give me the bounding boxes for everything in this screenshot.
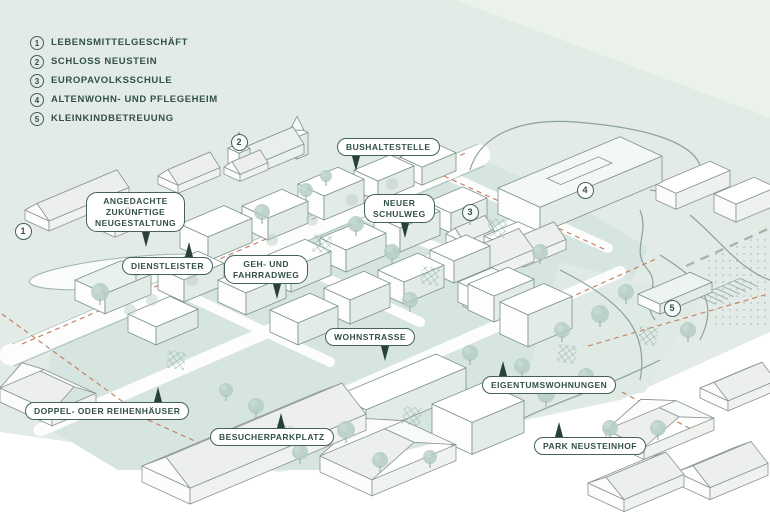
legend-item: 5KLEINKINDBETREUUNG bbox=[30, 111, 218, 126]
site-plan-illustration: 1LEBENSMITTELGESCHÄFT2SCHLOSS NEUSTEIN3E… bbox=[0, 0, 770, 515]
legend-number-badge: 4 bbox=[30, 93, 44, 107]
legend-item: 1LEBENSMITTELGESCHÄFT bbox=[30, 35, 218, 50]
legend-label: LEBENSMITTELGESCHÄFT bbox=[51, 37, 188, 48]
legend-number-badge: 2 bbox=[30, 55, 44, 69]
map-label-neuer-schulweg: NEUER SCHULWEG bbox=[364, 194, 435, 223]
map-label-eigentumswohnungen: EIGENTUMSWOHNUNGEN bbox=[482, 376, 616, 394]
label-pointer-icon bbox=[555, 422, 563, 437]
legend-number-badge: 5 bbox=[30, 112, 44, 126]
map-label-doppel-oder-reihenhaeuser: DOPPEL- ODER REIHENHÄUSER bbox=[25, 402, 189, 420]
legend-item: 3EUROPAVOLKSSCHULE bbox=[30, 73, 218, 88]
map-label-angedachte-neugestaltung: ANGEDACHTE ZUKÜNFTIGE NEUGESTALTUNG bbox=[86, 192, 185, 232]
map-marker-3: 3 bbox=[462, 204, 479, 221]
map-marker-5: 5 bbox=[664, 300, 681, 317]
label-pointer-icon bbox=[352, 156, 360, 171]
label-pointer-icon bbox=[154, 387, 162, 402]
map-label-dienstleister: DIENSTLEISTER bbox=[122, 257, 213, 275]
map-label-park-neusteinhof: PARK NEUSTEINHOF bbox=[534, 437, 646, 455]
map-label-geh-und-fahrradweg: GEH- UND FAHRRADWEG bbox=[224, 255, 308, 284]
legend: 1LEBENSMITTELGESCHÄFT2SCHLOSS NEUSTEIN3E… bbox=[30, 35, 218, 130]
legend-label: SCHLOSS NEUSTEIN bbox=[51, 56, 157, 67]
map-label-besucherparkplatz: BESUCHERPARKPLATZ bbox=[210, 428, 334, 446]
label-pointer-icon bbox=[273, 284, 281, 299]
legend-label: KLEINKINDBETREUUNG bbox=[51, 113, 174, 124]
map-marker-4: 4 bbox=[577, 182, 594, 199]
legend-label: ALTENWOHN- UND PFLEGEHEIM bbox=[51, 94, 218, 105]
label-pointer-icon bbox=[277, 413, 285, 428]
legend-item: 4ALTENWOHN- UND PFLEGEHEIM bbox=[30, 92, 218, 107]
map-marker-2: 2 bbox=[231, 134, 248, 151]
legend-number-badge: 1 bbox=[30, 36, 44, 50]
label-pointer-icon bbox=[381, 346, 389, 361]
map-marker-1: 1 bbox=[15, 223, 32, 240]
label-pointer-icon bbox=[499, 361, 507, 376]
label-pointer-icon bbox=[401, 223, 409, 238]
legend-number-badge: 3 bbox=[30, 74, 44, 88]
map-label-wohnstrasse: WOHNSTRASSE bbox=[325, 328, 415, 346]
label-pointer-icon bbox=[185, 242, 193, 257]
legend-label: EUROPAVOLKSSCHULE bbox=[51, 75, 172, 86]
map-label-bushaltestelle: BUSHALTESTELLE bbox=[337, 138, 440, 156]
label-pointer-icon bbox=[142, 232, 150, 247]
legend-item: 2SCHLOSS NEUSTEIN bbox=[30, 54, 218, 69]
